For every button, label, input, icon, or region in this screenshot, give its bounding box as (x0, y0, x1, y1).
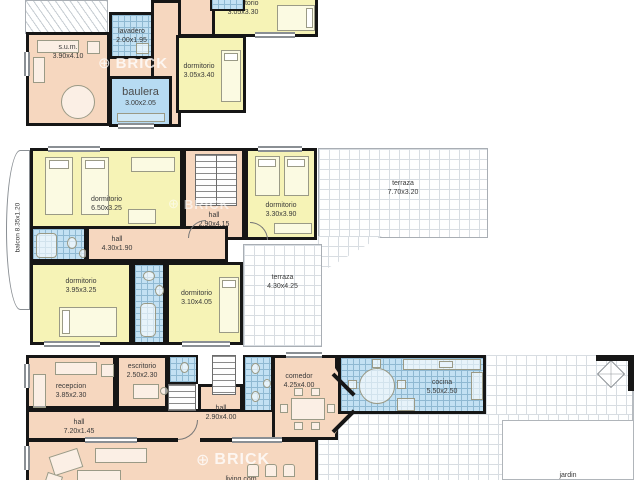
room-name: escritorio (119, 362, 165, 371)
room-jardin: jardin (502, 420, 634, 480)
counter-icon (471, 372, 483, 400)
room-name: comedor (269, 372, 329, 381)
room-dims: 7.20x1.45 (0, 427, 179, 436)
wall (137, 438, 178, 442)
room-cocina: cocina 5.50x2.50 (338, 355, 486, 414)
chair-icon (280, 404, 288, 413)
stairs-icon (212, 355, 236, 395)
room-label: escritorio 2.50x2.30 (119, 362, 165, 380)
window (85, 437, 137, 443)
armchair-icon (101, 364, 114, 377)
room-label: hall 7.20x1.45 (0, 418, 179, 436)
chair-icon (283, 464, 295, 477)
window (48, 146, 100, 152)
window (182, 341, 230, 347)
grill-corner-wall (628, 355, 634, 391)
sink-icon (263, 379, 271, 388)
room-dims: 2.50x2.30 (119, 371, 165, 380)
window (24, 364, 30, 388)
chair-icon (294, 388, 303, 396)
room-escritorio: escritorio 2.50x2.30 (116, 355, 168, 409)
sofa-icon (95, 448, 147, 463)
window (232, 437, 282, 443)
toilet-icon (180, 362, 189, 373)
table-icon (77, 470, 121, 480)
stairs-icon (168, 384, 196, 411)
room-recepcion: recepcion 3.85x2.30 (26, 355, 116, 409)
sofa-icon (55, 362, 97, 375)
chair-icon (294, 422, 303, 430)
window (118, 123, 154, 129)
room-bath-ground-b (243, 355, 273, 412)
toilet-icon (251, 363, 260, 374)
chair-icon (247, 464, 259, 477)
room-name: jardin (503, 471, 633, 480)
window (24, 52, 30, 76)
room-bath-ground-a (168, 355, 198, 384)
room-comedor: comedor 4.25x4.00 (272, 355, 338, 440)
window (286, 352, 322, 358)
window (44, 341, 100, 347)
room-name: hall (0, 418, 179, 427)
window (258, 146, 302, 152)
chair-icon (311, 422, 320, 430)
desk-icon (133, 384, 159, 399)
chair-icon (327, 404, 335, 413)
chair-icon (160, 387, 168, 395)
chair-icon (265, 464, 277, 477)
chair-icon (311, 388, 320, 396)
table-icon (291, 398, 325, 420)
floorplan-canvas: s.u.m. 3.90x4.10 lavadero 2.00x1.95 baul… (0, 0, 640, 480)
chair-icon (397, 380, 406, 389)
plan-ground: jardin hall 7.20x1.45 hall (0, 0, 640, 480)
window (24, 446, 30, 470)
sink-icon (439, 361, 453, 368)
wall (200, 438, 232, 442)
stove-icon (397, 398, 415, 411)
room-label: jardin (503, 471, 633, 480)
table-icon (359, 368, 395, 404)
chair-icon (372, 359, 381, 368)
wall (282, 438, 318, 442)
wall (26, 438, 85, 442)
bidet-icon (251, 391, 260, 402)
window (255, 32, 295, 38)
sofa-icon (33, 374, 46, 408)
